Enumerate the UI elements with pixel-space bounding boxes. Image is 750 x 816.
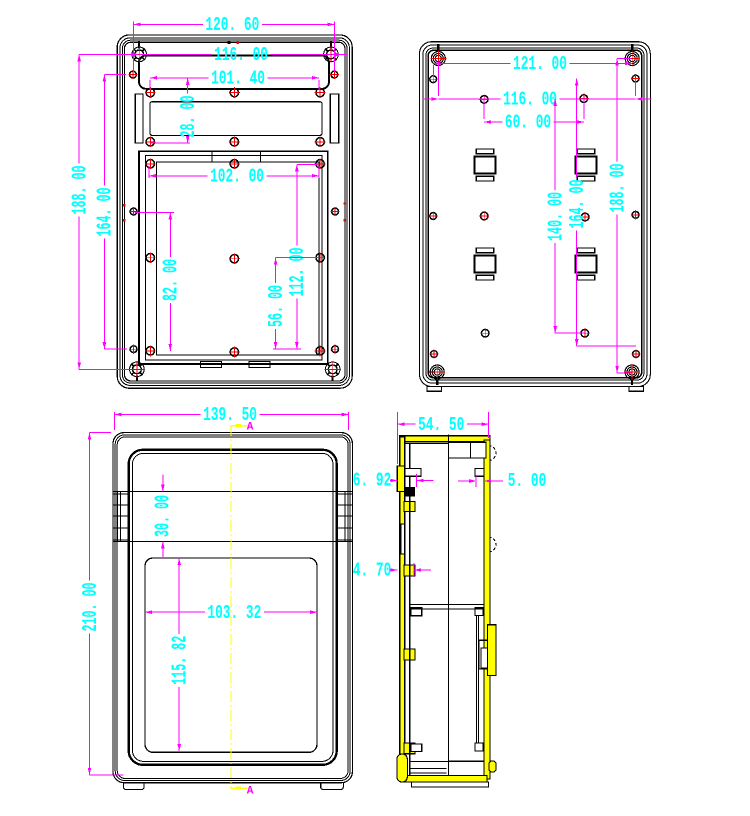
svg-text:164. 00: 164. 00	[567, 180, 590, 229]
svg-text:116. 00: 116. 00	[214, 44, 268, 66]
svg-text:82. 00: 82. 00	[161, 259, 184, 301]
svg-text:60. 00: 60. 00	[505, 112, 551, 134]
svg-text:54. 50: 54. 50	[418, 414, 464, 436]
svg-text:28. 00: 28. 00	[178, 96, 201, 138]
svg-text:A: A	[247, 785, 254, 797]
svg-text:188. 00: 188. 00	[70, 166, 93, 215]
svg-text:140. 00: 140. 00	[546, 192, 569, 241]
svg-text:101. 40: 101. 40	[211, 67, 265, 89]
svg-text:112. 00: 112. 00	[287, 248, 310, 297]
svg-text:6. 92: 6. 92	[353, 470, 392, 492]
svg-text:103. 32: 103. 32	[207, 602, 261, 624]
svg-text:116. 00: 116. 00	[503, 89, 557, 111]
svg-text:4. 70: 4. 70	[353, 560, 392, 582]
svg-text:210. 00: 210. 00	[80, 583, 103, 632]
svg-text:115. 82: 115. 82	[170, 636, 193, 685]
svg-text:5. 00: 5. 00	[508, 470, 547, 492]
svg-text:120. 60: 120. 60	[205, 14, 259, 36]
svg-text:56. 00: 56. 00	[266, 285, 289, 327]
svg-text:30. 00: 30. 00	[153, 495, 176, 537]
svg-text:164. 00: 164. 00	[95, 188, 118, 237]
svg-text:188. 00: 188. 00	[607, 164, 630, 213]
svg-text:139. 50: 139. 50	[203, 404, 257, 426]
svg-text:102. 00: 102. 00	[210, 165, 264, 187]
svg-text:121. 00: 121. 00	[513, 53, 567, 75]
